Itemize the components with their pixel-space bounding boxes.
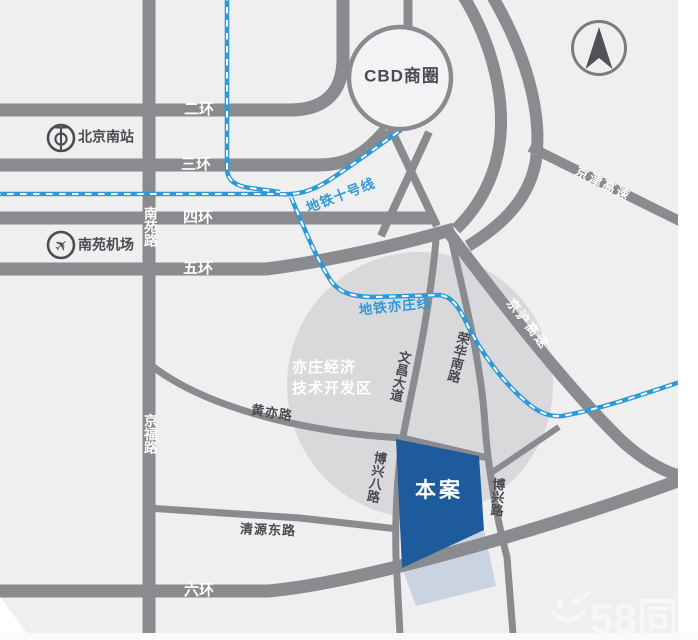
map-canvas: ✈ 58同 <box>0 0 698 640</box>
map-screenshot: ✈ 58同 CBD商圈二环三环四环五环六环南苑路京福路北京南站南苑机场地铁十号线… <box>0 0 698 640</box>
right-edge-strip <box>678 0 698 640</box>
bottom-edge-strip <box>0 633 698 640</box>
airplane-icon: ✈ <box>48 232 74 258</box>
cbd-circle <box>349 27 451 129</box>
train-station-icon <box>48 125 74 151</box>
